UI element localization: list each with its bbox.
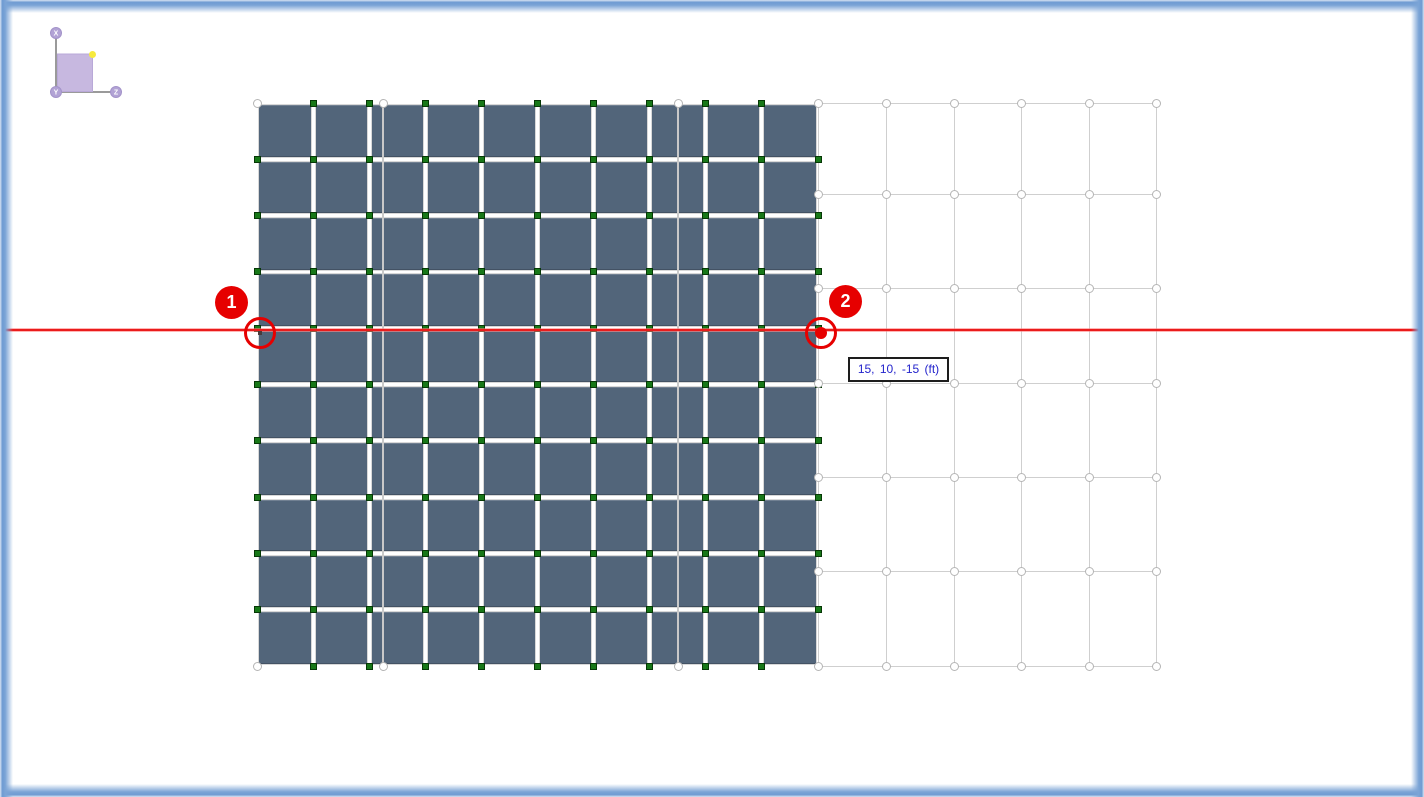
grid-intersection-marker bbox=[950, 99, 959, 108]
plate-panel[interactable] bbox=[540, 274, 591, 326]
grid-node[interactable] bbox=[478, 381, 485, 388]
grid-node[interactable] bbox=[815, 156, 822, 163]
plate-panel[interactable] bbox=[764, 105, 815, 157]
reference-grid-hline bbox=[818, 477, 1156, 478]
grid-node[interactable] bbox=[590, 437, 597, 444]
grid-node[interactable] bbox=[366, 437, 373, 444]
grid-node[interactable] bbox=[366, 100, 373, 107]
grid-node[interactable] bbox=[646, 268, 653, 275]
grid-node[interactable] bbox=[478, 606, 485, 613]
grid-node[interactable] bbox=[310, 212, 317, 219]
triad-plane-square bbox=[58, 54, 93, 92]
plate-panel[interactable] bbox=[316, 218, 367, 270]
grid-intersection-marker bbox=[379, 99, 388, 108]
plate-panel[interactable] bbox=[708, 162, 759, 214]
grid-intersection-marker bbox=[814, 379, 823, 388]
plate-panel[interactable] bbox=[372, 105, 423, 157]
plate-panel[interactable] bbox=[596, 500, 647, 552]
grid-intersection-marker bbox=[950, 284, 959, 293]
grid-intersection-marker bbox=[1085, 190, 1094, 199]
grid-intersection-marker bbox=[1152, 567, 1161, 576]
plate-panel[interactable] bbox=[259, 612, 310, 664]
plate-panel[interactable] bbox=[484, 218, 535, 270]
grid-node[interactable] bbox=[702, 606, 709, 613]
plate-panel[interactable] bbox=[596, 612, 647, 664]
grid-node[interactable] bbox=[310, 268, 317, 275]
grid-node[interactable] bbox=[702, 100, 709, 107]
grid-intersection-marker bbox=[1017, 379, 1026, 388]
grid-node[interactable] bbox=[646, 663, 653, 670]
grid-intersection-marker bbox=[1017, 99, 1026, 108]
grid-node[interactable] bbox=[815, 212, 822, 219]
plate-panel[interactable] bbox=[372, 274, 423, 326]
grid-node[interactable] bbox=[478, 156, 485, 163]
plate-panel[interactable] bbox=[428, 162, 479, 214]
grid-intersection-marker bbox=[253, 99, 262, 108]
reference-grid-hline bbox=[818, 383, 1156, 384]
grid-intersection-marker bbox=[814, 567, 823, 576]
grid-node[interactable] bbox=[590, 494, 597, 501]
plate-panel[interactable] bbox=[428, 331, 479, 383]
plate-panel[interactable] bbox=[540, 105, 591, 157]
grid-intersection-marker bbox=[1017, 284, 1026, 293]
grid-node[interactable] bbox=[478, 212, 485, 219]
reference-grid-hline bbox=[818, 103, 1156, 104]
plate-panel[interactable] bbox=[316, 612, 367, 664]
plate-panel[interactable] bbox=[372, 500, 423, 552]
grid-node[interactable] bbox=[702, 437, 709, 444]
grid-node[interactable] bbox=[815, 437, 822, 444]
grid-node[interactable] bbox=[590, 550, 597, 557]
grid-node[interactable] bbox=[815, 550, 822, 557]
plate-panel[interactable] bbox=[316, 162, 367, 214]
reference-grid-hline bbox=[818, 666, 1156, 667]
plate-panel[interactable] bbox=[708, 331, 759, 383]
grid-node[interactable] bbox=[366, 663, 373, 670]
grid-node[interactable] bbox=[534, 212, 541, 219]
plate-panel[interactable] bbox=[316, 443, 367, 495]
grid-node[interactable] bbox=[478, 100, 485, 107]
grid-node[interactable] bbox=[758, 437, 765, 444]
axis-x-label: X bbox=[54, 31, 59, 38]
plate-panel[interactable] bbox=[540, 331, 591, 383]
plate-panel[interactable] bbox=[484, 331, 535, 383]
plate-panel[interactable] bbox=[596, 218, 647, 270]
plate-panel[interactable] bbox=[484, 162, 535, 214]
grid-node[interactable] bbox=[815, 494, 822, 501]
plate-panel[interactable] bbox=[540, 443, 591, 495]
grid-node[interactable] bbox=[702, 212, 709, 219]
grid-node[interactable] bbox=[702, 381, 709, 388]
grid-node[interactable] bbox=[534, 437, 541, 444]
reference-grid-overlay-vline bbox=[382, 103, 384, 666]
plate-panel[interactable] bbox=[540, 387, 591, 439]
reference-grid-hline bbox=[818, 194, 1156, 195]
plate-panel[interactable] bbox=[259, 162, 310, 214]
grid-node[interactable] bbox=[422, 268, 429, 275]
plate-panel[interactable] bbox=[540, 500, 591, 552]
grid-intersection-marker bbox=[674, 662, 683, 671]
viewport[interactable]: 1 2 15, 10, -15 (ft) X Y Z bbox=[0, 0, 1424, 797]
plate-panel[interactable] bbox=[372, 331, 423, 383]
plate-panel[interactable] bbox=[708, 612, 759, 664]
plate-panel[interactable] bbox=[259, 500, 310, 552]
grid-node[interactable] bbox=[366, 494, 373, 501]
plate-panel[interactable] bbox=[596, 105, 647, 157]
plate-panel[interactable] bbox=[316, 387, 367, 439]
grid-node[interactable] bbox=[702, 156, 709, 163]
grid-node[interactable] bbox=[646, 156, 653, 163]
plate-panel[interactable] bbox=[540, 556, 591, 608]
grid-intersection-marker bbox=[1017, 567, 1026, 576]
grid-node[interactable] bbox=[310, 381, 317, 388]
grid-node[interactable] bbox=[534, 381, 541, 388]
grid-node[interactable] bbox=[702, 494, 709, 501]
grid-node[interactable] bbox=[590, 100, 597, 107]
snap-crosshair bbox=[258, 331, 262, 335]
plate-panel[interactable] bbox=[428, 274, 479, 326]
measure-point-1-ring[interactable] bbox=[244, 317, 276, 349]
plate-panel[interactable] bbox=[708, 105, 759, 157]
plate-panel[interactable] bbox=[764, 162, 815, 214]
grid-node[interactable] bbox=[478, 494, 485, 501]
grid-node[interactable] bbox=[422, 663, 429, 670]
plate-panel[interactable] bbox=[708, 443, 759, 495]
plate-panel[interactable] bbox=[596, 556, 647, 608]
plate-panel[interactable] bbox=[316, 331, 367, 383]
grid-node[interactable] bbox=[758, 100, 765, 107]
grid-node[interactable] bbox=[758, 663, 765, 670]
plate-panel[interactable] bbox=[764, 274, 815, 326]
grid-node[interactable] bbox=[702, 550, 709, 557]
step-1-badge: 1 bbox=[215, 286, 248, 319]
grid-intersection-marker bbox=[1152, 284, 1161, 293]
plate-panel[interactable] bbox=[259, 105, 310, 157]
plate-panel[interactable] bbox=[259, 556, 310, 608]
grid-node[interactable] bbox=[646, 550, 653, 557]
grid-node[interactable] bbox=[310, 437, 317, 444]
grid-node[interactable] bbox=[646, 437, 653, 444]
grid-node[interactable] bbox=[422, 494, 429, 501]
plate-panel[interactable] bbox=[428, 387, 479, 439]
plate-panel[interactable] bbox=[596, 331, 647, 383]
grid-node[interactable] bbox=[646, 100, 653, 107]
plate-panel[interactable] bbox=[596, 443, 647, 495]
plate-panel[interactable] bbox=[540, 612, 591, 664]
grid-intersection-marker bbox=[814, 284, 823, 293]
grid-intersection-marker bbox=[1085, 662, 1094, 671]
grid-node[interactable] bbox=[534, 606, 541, 613]
grid-node[interactable] bbox=[422, 381, 429, 388]
grid-intersection-marker bbox=[1152, 662, 1161, 671]
axis-z-label: Z bbox=[114, 90, 119, 97]
grid-node[interactable] bbox=[590, 606, 597, 613]
axis-y-node: Y bbox=[51, 87, 62, 98]
grid-node[interactable] bbox=[646, 381, 653, 388]
grid-node[interactable] bbox=[478, 437, 485, 444]
grid-node[interactable] bbox=[366, 606, 373, 613]
grid-node[interactable] bbox=[478, 663, 485, 670]
grid-node[interactable] bbox=[254, 550, 261, 557]
plate-panel[interactable] bbox=[428, 443, 479, 495]
grid-node[interactable] bbox=[590, 268, 597, 275]
reference-grid-hline bbox=[818, 288, 1156, 289]
grid-node[interactable] bbox=[422, 550, 429, 557]
grid-intersection-marker bbox=[1017, 662, 1026, 671]
plate-panel[interactable] bbox=[764, 556, 815, 608]
grid-node[interactable] bbox=[702, 268, 709, 275]
plate-panel[interactable] bbox=[259, 443, 310, 495]
grid-node[interactable] bbox=[254, 381, 261, 388]
grid-intersection-marker bbox=[950, 473, 959, 482]
grid-intersection-marker bbox=[882, 190, 891, 199]
grid-node[interactable] bbox=[254, 437, 261, 444]
plate-panel[interactable] bbox=[764, 500, 815, 552]
plate-panel[interactable] bbox=[372, 162, 423, 214]
coordinate-tooltip: 15, 10, -15 (ft) bbox=[848, 357, 949, 382]
grid-node[interactable] bbox=[310, 494, 317, 501]
triad-corner-marker bbox=[89, 51, 96, 58]
grid-node[interactable] bbox=[758, 550, 765, 557]
plate-panel[interactable] bbox=[428, 556, 479, 608]
grid-node[interactable] bbox=[646, 212, 653, 219]
grid-node[interactable] bbox=[758, 606, 765, 613]
model-layer bbox=[0, 0, 1424, 797]
grid-node[interactable] bbox=[758, 156, 765, 163]
grid-node[interactable] bbox=[702, 663, 709, 670]
grid-intersection-marker bbox=[882, 473, 891, 482]
grid-intersection-marker bbox=[1085, 473, 1094, 482]
grid-node[interactable] bbox=[758, 381, 765, 388]
grid-intersection-marker bbox=[814, 473, 823, 482]
reference-grid-hline bbox=[818, 571, 1156, 572]
plate-panel[interactable] bbox=[708, 274, 759, 326]
grid-intersection-marker bbox=[950, 379, 959, 388]
grid-node[interactable] bbox=[534, 494, 541, 501]
grid-node[interactable] bbox=[366, 268, 373, 275]
grid-node[interactable] bbox=[534, 100, 541, 107]
grid-node[interactable] bbox=[366, 212, 373, 219]
plate-panel[interactable] bbox=[316, 500, 367, 552]
plate-panel[interactable] bbox=[428, 500, 479, 552]
plate-panel[interactable] bbox=[372, 387, 423, 439]
plate-panel[interactable] bbox=[259, 387, 310, 439]
plate-panel[interactable] bbox=[428, 612, 479, 664]
grid-node[interactable] bbox=[478, 268, 485, 275]
grid-intersection-marker bbox=[1152, 379, 1161, 388]
grid-intersection-marker bbox=[674, 99, 683, 108]
grid-node[interactable] bbox=[310, 550, 317, 557]
selected-point-dot bbox=[815, 327, 827, 339]
grid-node[interactable] bbox=[422, 212, 429, 219]
grid-intersection-marker bbox=[882, 662, 891, 671]
plate-panel[interactable] bbox=[259, 218, 310, 270]
grid-intersection-marker bbox=[950, 567, 959, 576]
plate-panel[interactable] bbox=[484, 274, 535, 326]
plate-panel[interactable] bbox=[708, 387, 759, 439]
grid-intersection-marker bbox=[882, 567, 891, 576]
grid-node[interactable] bbox=[534, 268, 541, 275]
plate-panel[interactable] bbox=[540, 218, 591, 270]
grid-node[interactable] bbox=[254, 494, 261, 501]
grid-intersection-marker bbox=[1152, 190, 1161, 199]
grid-intersection-marker bbox=[1085, 284, 1094, 293]
grid-intersection-marker bbox=[1017, 190, 1026, 199]
grid-node[interactable] bbox=[758, 494, 765, 501]
plate-panel[interactable] bbox=[316, 105, 367, 157]
plate-panel[interactable] bbox=[316, 274, 367, 326]
plate-panel[interactable] bbox=[708, 218, 759, 270]
measure-point-2-ring[interactable] bbox=[805, 317, 837, 349]
grid-node[interactable] bbox=[646, 494, 653, 501]
grid-node[interactable] bbox=[254, 268, 261, 275]
grid-intersection-marker bbox=[253, 662, 262, 671]
plate-panel[interactable] bbox=[708, 500, 759, 552]
plate-panel[interactable] bbox=[372, 612, 423, 664]
grid-node[interactable] bbox=[422, 437, 429, 444]
grid-node[interactable] bbox=[254, 606, 261, 613]
plate-panel[interactable] bbox=[372, 556, 423, 608]
plate-panel[interactable] bbox=[484, 443, 535, 495]
plate-panel[interactable] bbox=[484, 105, 535, 157]
grid-node[interactable] bbox=[310, 663, 317, 670]
reference-grid-overlay-vline bbox=[677, 103, 679, 666]
grid-node[interactable] bbox=[366, 381, 373, 388]
grid-node[interactable] bbox=[815, 268, 822, 275]
grid-node[interactable] bbox=[478, 550, 485, 557]
grid-intersection-marker bbox=[1085, 567, 1094, 576]
grid-node[interactable] bbox=[534, 663, 541, 670]
grid-node[interactable] bbox=[422, 606, 429, 613]
axis-z-node: Z bbox=[111, 87, 122, 98]
axis-triad[interactable]: X Y Z bbox=[40, 20, 130, 105]
grid-node[interactable] bbox=[534, 550, 541, 557]
grid-node[interactable] bbox=[310, 606, 317, 613]
plate-panel[interactable] bbox=[484, 500, 535, 552]
plate-panel[interactable] bbox=[596, 162, 647, 214]
plate-panel[interactable] bbox=[708, 556, 759, 608]
grid-node[interactable] bbox=[590, 212, 597, 219]
grid-node[interactable] bbox=[310, 100, 317, 107]
plate-panel[interactable] bbox=[764, 387, 815, 439]
plate-panel[interactable] bbox=[596, 274, 647, 326]
grid-intersection-marker bbox=[950, 190, 959, 199]
plate-panel[interactable] bbox=[484, 612, 535, 664]
grid-node[interactable] bbox=[422, 156, 429, 163]
grid-intersection-marker bbox=[379, 662, 388, 671]
plate-panel[interactable] bbox=[764, 218, 815, 270]
plate-panel[interactable] bbox=[484, 556, 535, 608]
grid-node[interactable] bbox=[422, 100, 429, 107]
measurement-line bbox=[0, 329, 1424, 331]
grid-node[interactable] bbox=[646, 606, 653, 613]
grid-intersection-marker bbox=[814, 662, 823, 671]
grid-node[interactable] bbox=[534, 156, 541, 163]
grid-intersection-marker bbox=[814, 99, 823, 108]
plate-panel[interactable] bbox=[428, 218, 479, 270]
grid-node[interactable] bbox=[758, 268, 765, 275]
plate-panel[interactable] bbox=[372, 218, 423, 270]
plate-panel[interactable] bbox=[372, 443, 423, 495]
axis-x-node: X bbox=[51, 28, 62, 39]
step-2-badge: 2 bbox=[829, 285, 862, 318]
grid-node[interactable] bbox=[590, 381, 597, 388]
grid-node[interactable] bbox=[254, 212, 261, 219]
grid-intersection-marker bbox=[1085, 99, 1094, 108]
plate-panel[interactable] bbox=[764, 612, 815, 664]
plate-panel[interactable] bbox=[428, 105, 479, 157]
grid-node[interactable] bbox=[254, 156, 261, 163]
grid-node[interactable] bbox=[366, 550, 373, 557]
grid-intersection-marker bbox=[1152, 473, 1161, 482]
plate-panel[interactable] bbox=[316, 556, 367, 608]
grid-intersection-marker bbox=[814, 190, 823, 199]
grid-node[interactable] bbox=[815, 606, 822, 613]
grid-node[interactable] bbox=[590, 156, 597, 163]
grid-intersection-marker bbox=[882, 284, 891, 293]
plate-panel[interactable] bbox=[764, 443, 815, 495]
grid-intersection-marker bbox=[1152, 99, 1161, 108]
plate-panel[interactable] bbox=[540, 162, 591, 214]
grid-intersection-marker bbox=[950, 662, 959, 671]
plate-panel[interactable] bbox=[484, 387, 535, 439]
grid-intersection-marker bbox=[882, 99, 891, 108]
grid-node[interactable] bbox=[366, 156, 373, 163]
axis-y-label: Y bbox=[54, 90, 59, 97]
plate-panel[interactable] bbox=[596, 387, 647, 439]
grid-intersection-marker bbox=[1085, 379, 1094, 388]
grid-intersection-marker bbox=[1017, 473, 1026, 482]
grid-node[interactable] bbox=[590, 663, 597, 670]
grid-node[interactable] bbox=[310, 156, 317, 163]
grid-node[interactable] bbox=[758, 212, 765, 219]
